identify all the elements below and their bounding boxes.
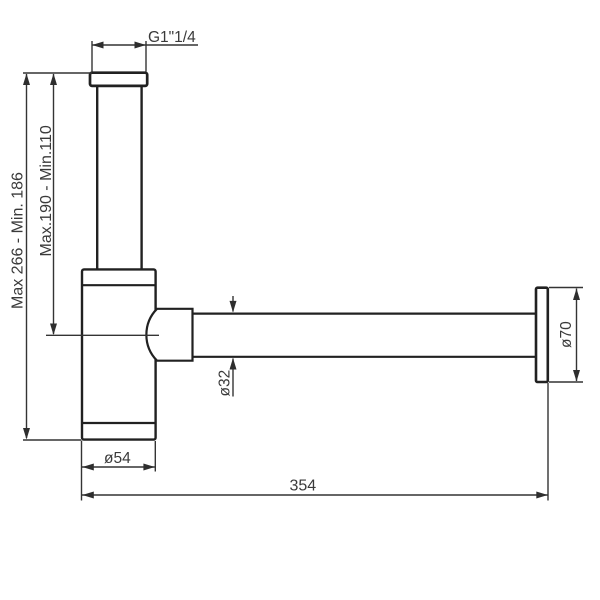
svg-text:ø54: ø54 bbox=[104, 450, 131, 467]
svg-text:G1"1/4: G1"1/4 bbox=[148, 29, 196, 46]
svg-text:ø32: ø32 bbox=[216, 370, 233, 397]
svg-text:354: 354 bbox=[290, 478, 317, 495]
svg-text:Max.190 - Min.110: Max.190 - Min.110 bbox=[38, 125, 55, 256]
svg-text:Max 266 - Min. 186: Max 266 - Min. 186 bbox=[10, 172, 27, 309]
svg-text:ø70: ø70 bbox=[558, 321, 575, 348]
